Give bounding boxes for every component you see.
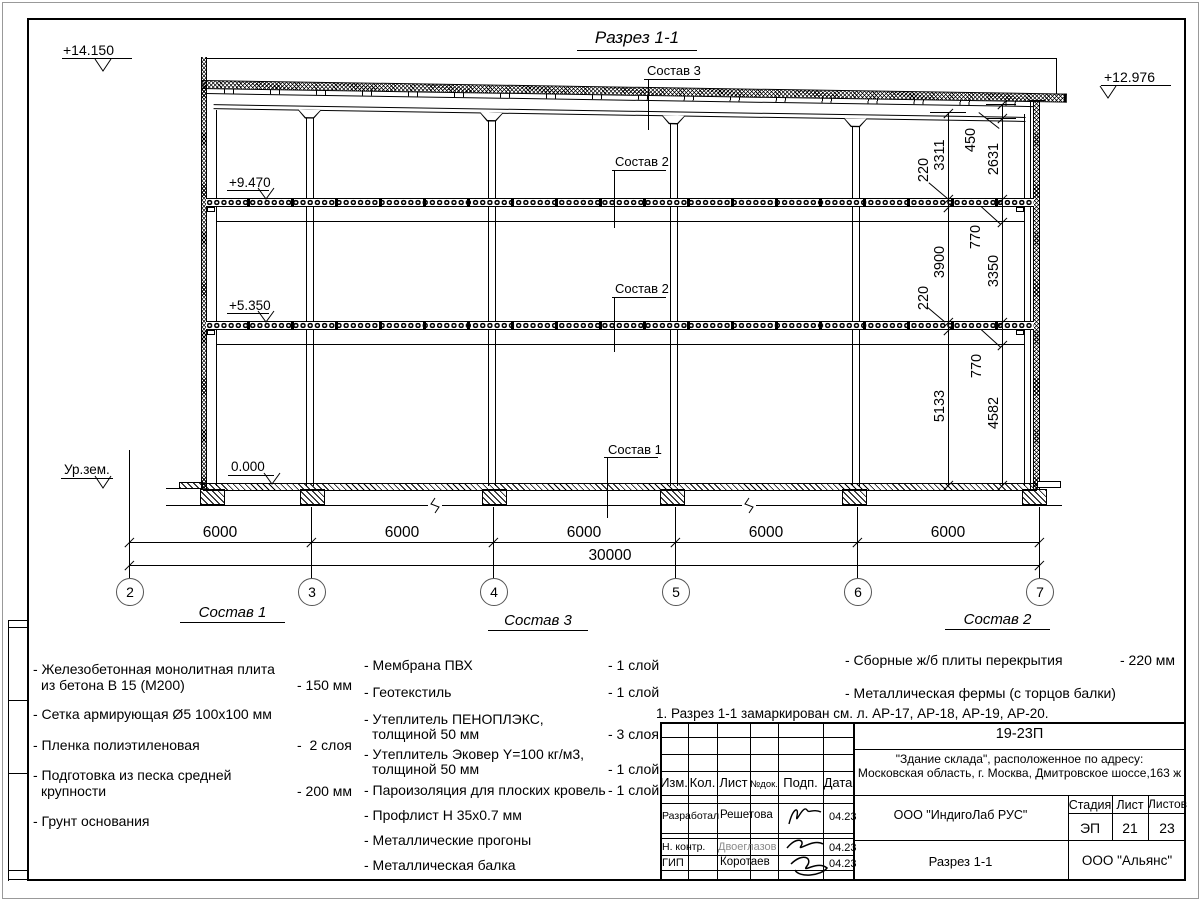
tb-col-header: №док. (750, 780, 778, 791)
level-mark-icon (258, 311, 274, 323)
page-title: Разрез 1-1 (577, 28, 697, 51)
tb-drawing-name: Разрез 1-1 (853, 855, 1068, 870)
grid-axis-bubble: 4 (480, 578, 508, 606)
break-mark-icon (428, 498, 442, 513)
foundation (200, 489, 225, 505)
dim-label: 6000 (372, 524, 432, 542)
callout-label: Состав 3 (647, 64, 701, 79)
dim-label: 450 (963, 118, 979, 162)
grid-axis-bubble: 2 (116, 578, 144, 606)
tb-code: 19-23П (853, 726, 1186, 743)
dim-label: 3311 (932, 133, 948, 177)
tb-sheet-header: Лист (1112, 798, 1148, 812)
tb-sheets-header: Листов (1148, 798, 1186, 812)
tb-stage-value: ЭП (1068, 820, 1112, 836)
callout-label: Состав 2 (615, 155, 669, 170)
level-label: +12.976 (1104, 69, 1155, 85)
level-label: +14.150 (63, 42, 114, 58)
tb-col-header: Дата (823, 776, 853, 791)
column (852, 127, 860, 486)
tb-date: 04.23 (829, 842, 857, 855)
floor-slab-5350 (206, 321, 1034, 330)
tb-name: Коротаев (720, 856, 770, 869)
composition-heading: Состав 2 (945, 611, 1050, 630)
level-mark-icon (95, 59, 111, 72)
level-mark-icon (1100, 86, 1116, 99)
callout-label: Состав 2 (615, 282, 669, 297)
column (306, 118, 314, 486)
dim-label: 770 (968, 215, 984, 259)
tb-role: Н. контр. (662, 841, 705, 853)
foundation (842, 489, 867, 505)
tb-sheet-value: 21 (1112, 820, 1148, 836)
tb-col-header: Подп. (778, 776, 823, 791)
column (670, 124, 678, 486)
dim-label: 4582 (986, 391, 1002, 435)
tb-col-header: Изм. (660, 776, 688, 791)
break-mark-icon (742, 498, 756, 513)
tb-object-line2: Московская область, г. Москва, Дмитровск… (853, 767, 1186, 781)
dim-total-label: 30000 (570, 547, 650, 565)
level-mark-icon (264, 473, 280, 485)
callout-label: Состав 1 (608, 443, 662, 458)
tb-role: Разработал (662, 810, 719, 822)
dim-label: 6000 (736, 524, 796, 542)
level-mark-icon (95, 476, 111, 489)
column (488, 121, 496, 486)
dim-label: 5133 (932, 384, 948, 428)
foundation (482, 489, 507, 505)
dim-label: 3900 (932, 240, 948, 284)
signature-icon (783, 834, 831, 878)
tb-name: Решетова (720, 809, 773, 822)
level-label: 0.000 (231, 459, 265, 475)
dim-label: 6000 (190, 524, 250, 542)
grid-axis-bubble: 3 (298, 578, 326, 606)
tb-company: ООО "Альянс" (1068, 853, 1186, 869)
tb-col-header: Кол. (688, 776, 717, 791)
drawing-note: 1. Разрез 1-1 замаркирован см. л. АР-17,… (656, 706, 1048, 722)
foundation (1022, 489, 1047, 505)
dim-label: 6000 (918, 524, 978, 542)
dim-label: 2631 (986, 137, 1002, 181)
composition-heading: Состав 3 (488, 612, 588, 631)
tb-designer-org: ООО "ИндигоЛаб РУС" (853, 808, 1068, 822)
tb-name: Двоеглазов (718, 841, 776, 854)
tb-object-line1: "Здание склада", расположенное по адресу… (853, 753, 1186, 767)
level-mark-icon (258, 188, 274, 200)
tb-stage-header: Стадия (1068, 798, 1112, 812)
composition-heading: Состав 1 (180, 604, 285, 623)
dim-label: 770 (969, 344, 985, 388)
grid-axis-bubble: 6 (844, 578, 872, 606)
floor-slab-9470 (206, 198, 1034, 207)
tb-col-header: Лист (717, 776, 750, 791)
right-wall (1033, 100, 1040, 490)
foundation (300, 489, 325, 505)
drawing-sheet: Разрез 1-1 (0, 0, 1200, 900)
tb-sheets-value: 23 (1148, 820, 1186, 836)
grid-axis-bubble: 5 (662, 578, 690, 606)
ground-slab (203, 483, 1037, 491)
dim-label: 3350 (986, 249, 1002, 293)
dim-label: 6000 (554, 524, 614, 542)
signature-icon (783, 798, 825, 830)
grid-axis-bubble: 7 (1026, 578, 1054, 606)
tb-role: ГИП (662, 857, 684, 870)
foundation (660, 489, 685, 505)
dim-label: 220 (916, 148, 932, 192)
dim-label: 220 (916, 276, 932, 320)
